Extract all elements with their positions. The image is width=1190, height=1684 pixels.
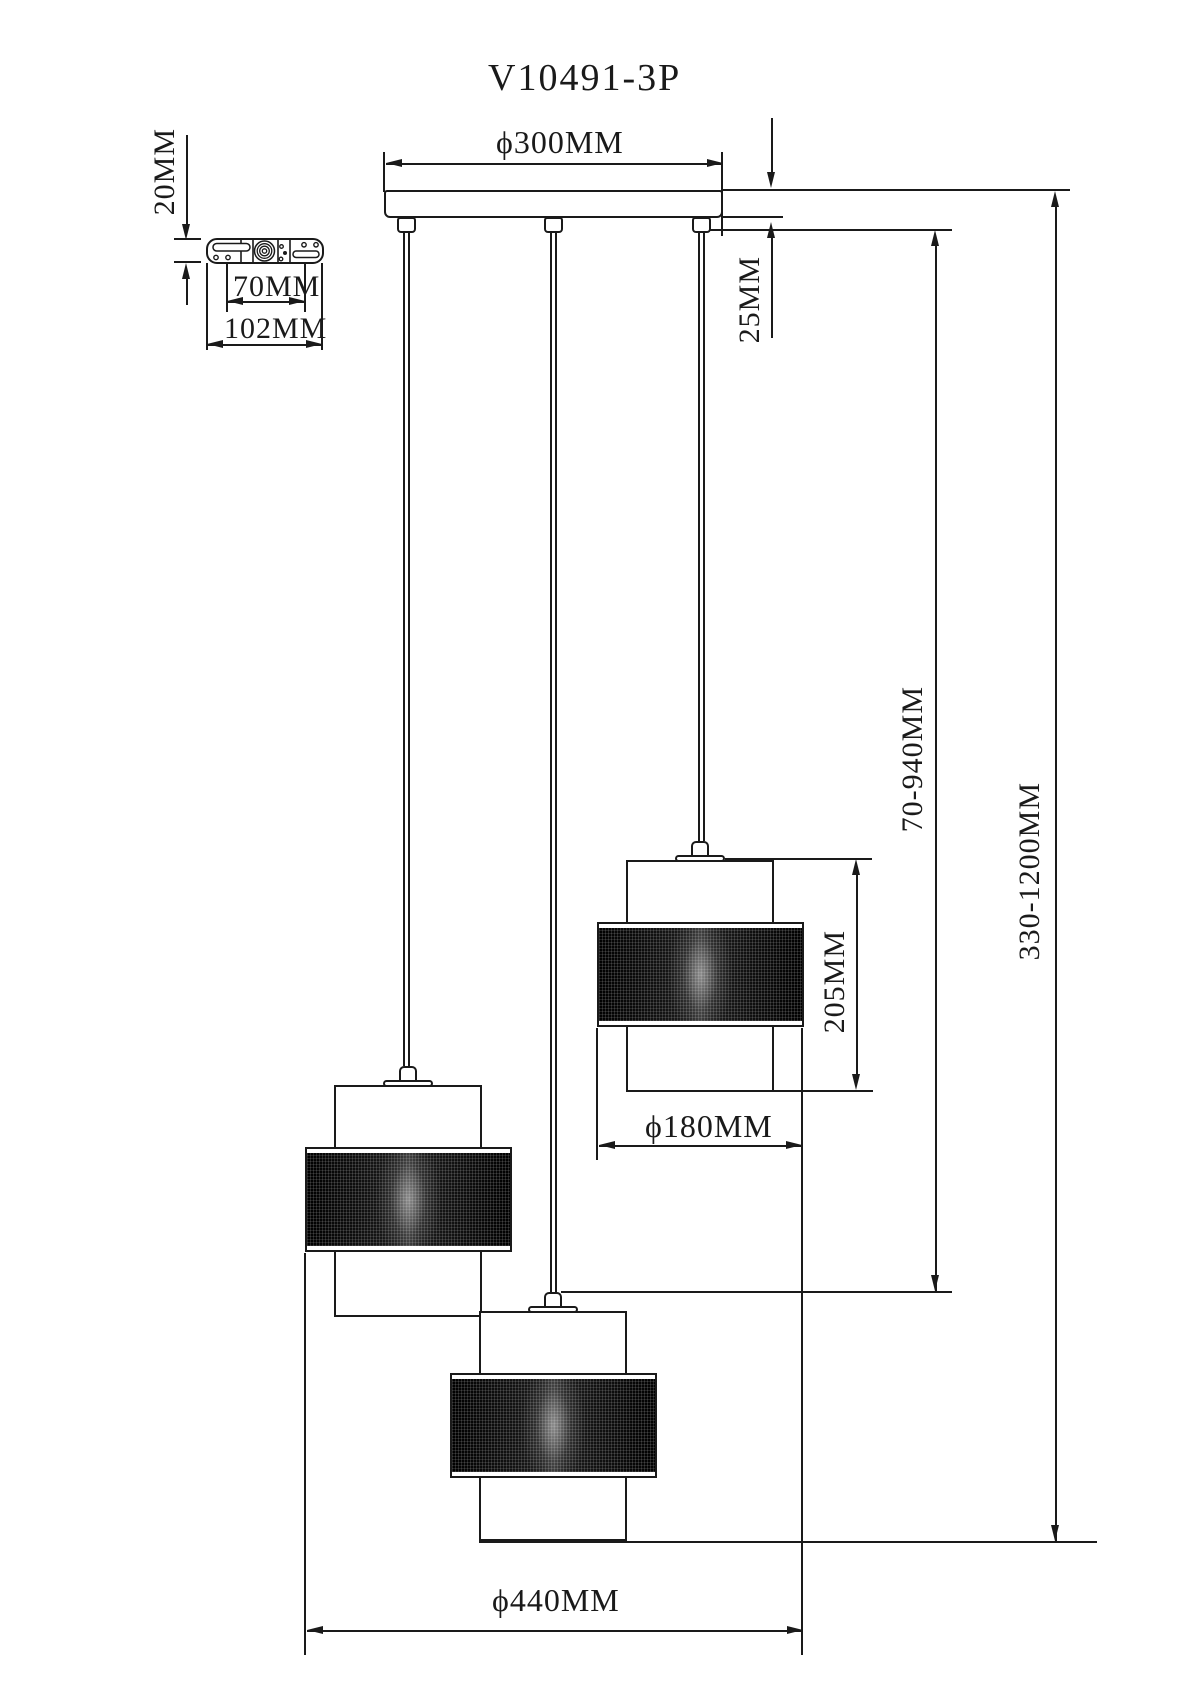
arrowhead-up — [182, 263, 190, 279]
arrowhead-left — [207, 340, 223, 348]
dim-label-bracket-thickness: 20MM — [148, 128, 182, 215]
ceiling-canopy — [384, 190, 723, 218]
arrowhead-left — [307, 1626, 323, 1634]
extension-line — [383, 152, 385, 192]
canopy-cord-grip-3 — [692, 217, 711, 233]
extension-line — [801, 1028, 803, 1655]
mounting-bracket-detail — [206, 238, 324, 265]
extension-line — [723, 189, 1070, 191]
arrowhead-right — [787, 1626, 803, 1634]
extension-line — [596, 1028, 598, 1160]
shade-rim-bottom — [452, 1472, 655, 1476]
extension-line — [710, 229, 952, 231]
dim-label-shade-height: 205MM — [818, 930, 852, 1033]
canopy-cord-grip-2 — [544, 217, 563, 233]
technical-drawing: V10491-3P 20MM 70MM — [0, 0, 1190, 1684]
bracket-slot-right — [293, 251, 319, 258]
dimension-line — [599, 1145, 802, 1147]
shade-mesh — [307, 1153, 510, 1246]
dimension-line — [771, 238, 773, 338]
extension-line — [174, 238, 201, 240]
suspension-cord-2 — [550, 233, 557, 1292]
dim-label-overall-diameter: ϕ440MM — [492, 1582, 620, 1619]
page-title: V10491-3P — [488, 56, 681, 100]
bracket-slot-left — [213, 244, 250, 252]
dim-label-total-height-range: 330-1200MM — [1013, 782, 1047, 960]
extension-line — [626, 1541, 1097, 1543]
dimension-line — [386, 163, 723, 165]
dim-label-bracket-hole-spacing: 70MM — [233, 270, 320, 304]
arrowhead-down — [767, 172, 775, 188]
dimension-line — [1055, 206, 1057, 1541]
extension-line — [723, 216, 783, 218]
dimension-line — [307, 1630, 803, 1632]
dimension-line — [186, 135, 188, 225]
dimension-line — [935, 245, 937, 1291]
arrowhead-down — [852, 1074, 860, 1090]
shade-rim-bottom — [599, 1021, 802, 1025]
arrowhead-up — [931, 230, 939, 246]
arrowhead-up — [852, 859, 860, 875]
dimension-line — [186, 279, 188, 305]
dimension-line — [771, 118, 773, 172]
shade-rim-bottom — [307, 1246, 510, 1250]
extension-line — [561, 1291, 952, 1293]
dim-label-bracket-length: 102MM — [224, 312, 327, 346]
lamp-1-shade — [597, 922, 804, 1027]
lamp-2-shade — [305, 1147, 512, 1252]
shade-mesh — [452, 1379, 655, 1472]
canopy-cord-grip-1 — [397, 217, 416, 233]
extension-line — [304, 1253, 306, 1655]
extension-line — [206, 263, 208, 350]
dim-label-cord-adjust-range: 70-940MM — [896, 686, 930, 832]
arrowhead-down — [931, 1275, 939, 1291]
extension-line — [725, 858, 872, 860]
dim-label-canopy-height: 25MM — [733, 256, 767, 343]
shade-mesh — [599, 928, 802, 1021]
dimension-line — [856, 874, 858, 1074]
arrowhead-right — [786, 1141, 802, 1149]
arrowhead-left — [599, 1141, 615, 1149]
arrowhead-right — [707, 159, 723, 167]
dim-label-shade-diameter: ϕ180MM — [645, 1108, 773, 1145]
lamp-3-shade — [450, 1373, 657, 1478]
extension-line — [773, 1090, 873, 1092]
arrowhead-left — [386, 159, 402, 167]
suspension-cord-3 — [698, 233, 705, 841]
arrowhead-down — [1051, 1525, 1059, 1541]
dim-label-canopy-diameter: ϕ300MM — [496, 124, 624, 161]
suspension-cord-1 — [403, 233, 410, 1066]
arrowhead-up — [1051, 191, 1059, 207]
